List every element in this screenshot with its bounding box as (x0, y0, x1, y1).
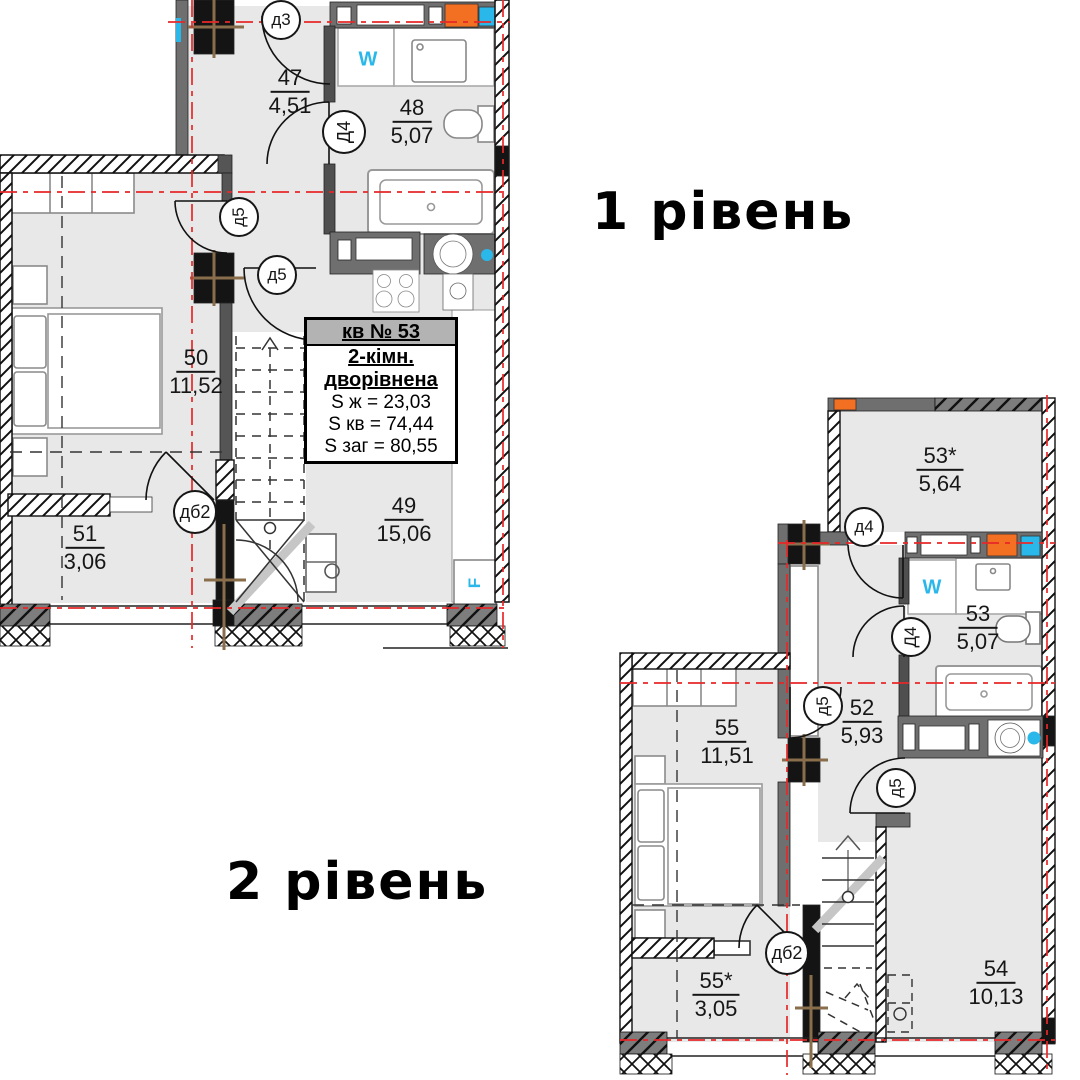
door-label-l2-d4-a: д4 (844, 507, 884, 547)
door-label-l2-d4-b: Д4 (891, 617, 931, 657)
room-label-53s: 53* 5,64 (916, 444, 963, 496)
room-label-53: 53 5,07 (957, 602, 1000, 654)
washer-icon-level2: W (923, 577, 942, 600)
door-label-d5-a: д5 (219, 197, 259, 237)
apartment-type-line2: дворівнена (307, 369, 455, 392)
room-label-54: 54 10,13 (968, 957, 1023, 1009)
room-label-51: 51 3,06 (64, 522, 107, 574)
area-total: S заг = 80,55 (307, 436, 455, 461)
door-label-db2: дб2 (173, 490, 217, 534)
floorplan-canvas: 1 рівень 2 рівень кв № 53 2-кімн. дворів… (0, 0, 1080, 1080)
door-label-l2-db2: дб2 (765, 931, 809, 975)
room-label-55: 55 11,51 (700, 716, 753, 768)
apartment-type-line1: 2-кімн. (307, 346, 455, 369)
room-label-55s: 55* 3,05 (692, 969, 739, 1021)
door-label-l2-d5-b: д5 (876, 768, 916, 808)
door-label-l2-d5-a: д5 (803, 686, 843, 726)
apartment-info-box: кв № 53 2-кімн. дворівнена S ж = 23,03 S… (304, 317, 458, 464)
floorplan-drawing (0, 0, 1080, 1080)
door-label-d3: д3 (261, 0, 301, 40)
level2-title: 2 рівень (226, 852, 488, 912)
room-label-50: 50 11,52 (169, 346, 222, 398)
room-label-48: 48 5,07 (391, 96, 434, 148)
room-label-52: 52 5,93 (841, 696, 884, 748)
area-living: S ж = 23,03 (307, 392, 455, 414)
door-label-d4: Д4 (322, 110, 366, 154)
level1-title: 1 рівень (592, 182, 854, 242)
room-label-49: 49 15,06 (376, 494, 431, 546)
door-label-d5-b: д5 (257, 255, 297, 295)
room-label-47: 47 4,51 (269, 66, 312, 118)
washer-icon: W (359, 49, 378, 72)
apartment-number: кв № 53 (307, 320, 455, 346)
area-apartment: S кв = 74,44 (307, 414, 455, 436)
fridge-icon: F (465, 578, 485, 588)
